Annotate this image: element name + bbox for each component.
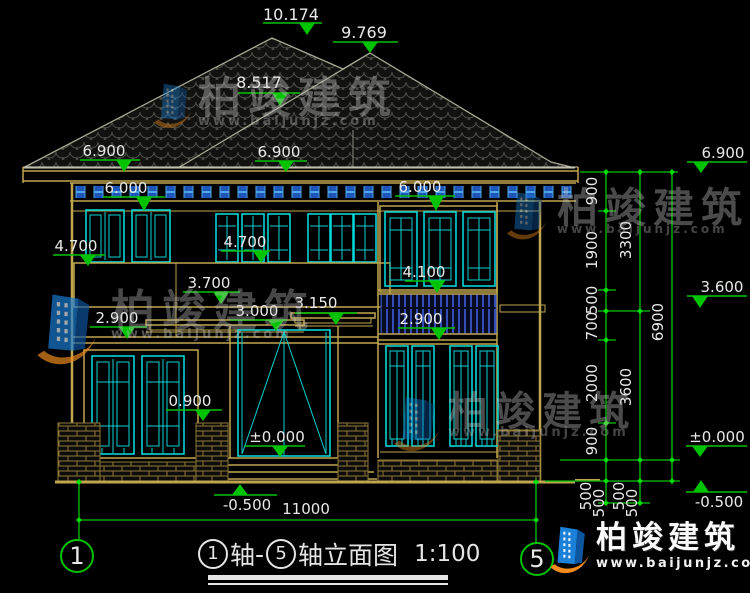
brand-logo: 柏竣建筑 www.baijunjz.com xyxy=(546,521,750,577)
title-dash: - xyxy=(255,540,264,569)
svg-text:4.700: 4.700 xyxy=(224,233,267,251)
svg-text:6.900: 6.900 xyxy=(702,144,745,162)
svg-text:6.000: 6.000 xyxy=(105,179,148,197)
title-name: 轴立面图 xyxy=(298,536,398,572)
elevation-marker: 10.174 xyxy=(263,5,322,35)
overall-width-dim: 11000 xyxy=(282,500,330,518)
svg-text:10.174: 10.174 xyxy=(263,5,319,24)
svg-text:4.700: 4.700 xyxy=(55,237,98,255)
window xyxy=(463,212,495,286)
axis-number: 1 xyxy=(69,542,84,570)
elevation-marker: 4.700 xyxy=(221,233,270,263)
elevation-marker: 4.100 xyxy=(403,263,446,293)
dim-label: 500 xyxy=(623,489,641,518)
svg-text:3.000: 3.000 xyxy=(236,302,279,320)
svg-text:-0.500: -0.500 xyxy=(223,496,271,514)
window xyxy=(268,214,290,262)
window xyxy=(450,346,472,446)
elevation-marker: -0.500 xyxy=(214,484,277,514)
svg-text:±0.000: ±0.000 xyxy=(689,428,745,446)
title-underline xyxy=(208,583,448,585)
svg-text:0.900: 0.900 xyxy=(169,392,212,410)
eave-brackets xyxy=(74,186,574,198)
svg-text:3.700: 3.700 xyxy=(188,274,231,292)
brand-logo-text: 柏竣建筑 xyxy=(596,521,750,555)
svg-text:9.769: 9.769 xyxy=(341,23,387,42)
dim-label: 900 xyxy=(583,427,601,456)
window xyxy=(386,346,408,446)
dim-label: 6900 xyxy=(649,303,667,341)
svg-text:6.900: 6.900 xyxy=(83,142,126,160)
title-axis-start-circle: 1 xyxy=(198,539,228,569)
side-ledge xyxy=(500,305,545,312)
elevation-marker: 3.700 xyxy=(183,274,240,304)
brand-logo-icon xyxy=(546,521,592,577)
svg-text:-0.500: -0.500 xyxy=(695,493,743,511)
right-dimension-labels: 900 1900 500 700 2000 900 500 500 3300 3… xyxy=(577,177,667,518)
dim-label: 1900 xyxy=(583,231,601,269)
elevation-marker: 2.900 xyxy=(90,309,147,339)
svg-text:8.517: 8.517 xyxy=(236,73,282,92)
elevation-marker: 3.600 xyxy=(687,278,747,308)
window xyxy=(354,214,376,262)
dim-label: 2000 xyxy=(583,364,601,402)
elevation-marker: ±0.000 xyxy=(686,428,747,457)
window xyxy=(308,214,330,262)
elevation-marker: 9.769 xyxy=(333,23,398,53)
window xyxy=(132,210,170,262)
window xyxy=(476,346,498,446)
dim-label: 700 xyxy=(583,312,601,341)
svg-text:6.000: 6.000 xyxy=(399,178,442,196)
elevation-drawing: 900 1900 500 700 2000 900 500 500 3300 3… xyxy=(0,0,750,593)
dim-label: 900 xyxy=(583,177,601,206)
drawing-title: 1轴-5轴立面图1:100 xyxy=(196,536,480,572)
dim-label: 500 xyxy=(583,286,601,315)
svg-text:4.100: 4.100 xyxy=(403,263,446,281)
brand-logo-url: www.baijunjz.com xyxy=(596,556,750,571)
axis-number: 5 xyxy=(529,545,544,573)
brick-pier xyxy=(338,423,368,481)
svg-text:3.600: 3.600 xyxy=(701,278,744,296)
svg-text:6.900: 6.900 xyxy=(258,143,301,161)
window xyxy=(331,214,353,262)
floor-band xyxy=(72,337,378,343)
brick-pier xyxy=(196,423,228,481)
elevation-marker: 6.900 xyxy=(687,144,747,173)
svg-text:±0.000: ±0.000 xyxy=(249,428,305,446)
brick-pier xyxy=(58,423,100,481)
dim-label: 3300 xyxy=(617,221,635,259)
svg-text:2.900: 2.900 xyxy=(96,309,139,327)
elevation-marker: 0.900 xyxy=(166,392,222,421)
title-axis-word: 轴 xyxy=(230,536,255,572)
cad-elevation-canvas: 900 1900 500 700 2000 900 500 500 3300 3… xyxy=(0,0,750,593)
window xyxy=(412,346,434,446)
title-underline xyxy=(208,575,448,580)
svg-text:2.900: 2.900 xyxy=(400,310,443,328)
brick-strip xyxy=(378,460,497,481)
strip-window-band xyxy=(74,263,390,307)
title-scale: 1:100 xyxy=(414,541,480,567)
brick-strip xyxy=(100,462,196,481)
dim-label: 500 xyxy=(590,489,608,518)
svg-text:3.150: 3.150 xyxy=(295,294,338,312)
dim-label: 3600 xyxy=(617,368,635,406)
elevation-marker: 3.000 xyxy=(230,302,287,331)
title-axis-end-circle: 5 xyxy=(266,539,296,569)
brick-pier xyxy=(498,430,540,481)
elevation-marker: ±0.000 xyxy=(245,428,305,457)
elevation-marker: -0.500 xyxy=(686,480,747,511)
